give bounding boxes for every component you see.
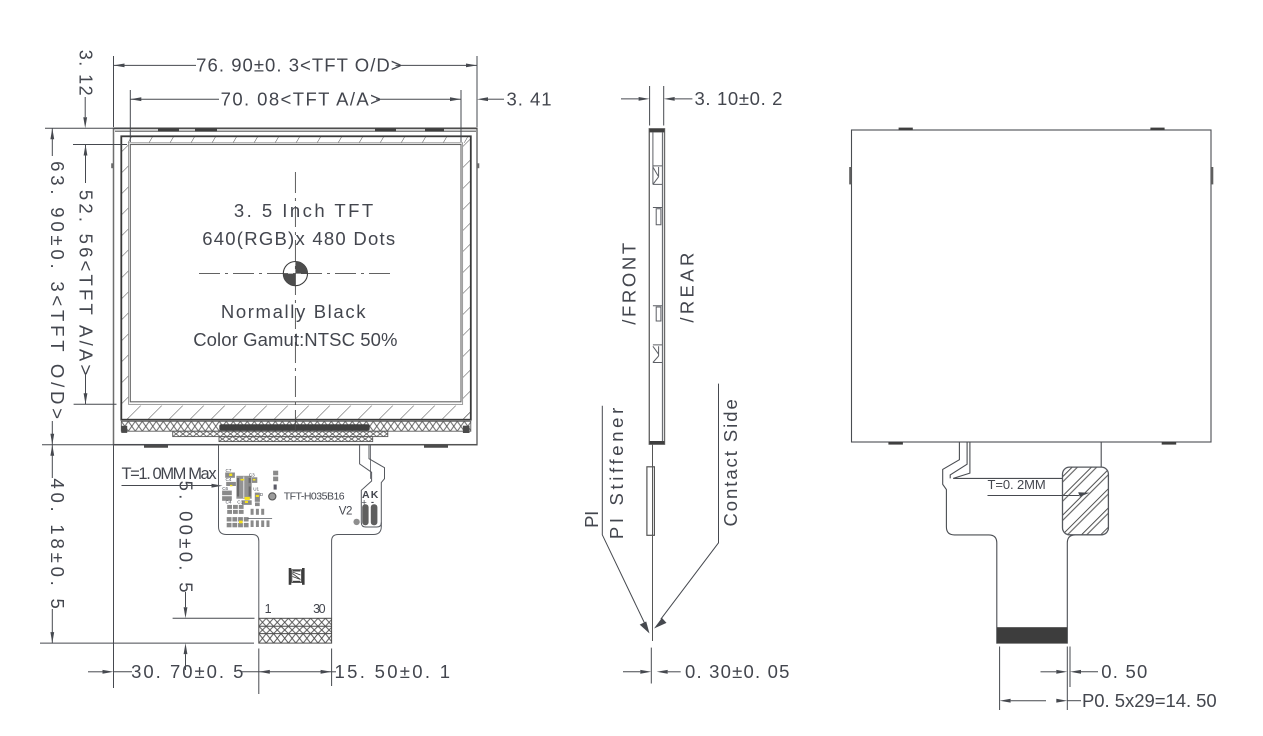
svg-text:TFT-H035B16: TFT-H035B16 — [284, 490, 345, 502]
svg-text:52. 56<TFT A/A>: 52. 56<TFT A/A> — [75, 190, 96, 379]
svg-text:3. 5 Inch TFT: 3. 5 Inch TFT — [234, 200, 376, 221]
svg-text:3. 10±0. 2: 3. 10±0. 2 — [695, 88, 784, 109]
svg-text:63. 90±0. 3<TFT O/D>: 63. 90±0. 3<TFT O/D> — [47, 161, 68, 423]
svg-text:C6: C6 — [222, 486, 228, 491]
svg-text:PI Stiffener: PI Stiffener — [606, 404, 627, 539]
svg-text:640(RGB)x 480 Dots: 640(RGB)x 480 Dots — [202, 228, 396, 249]
svg-text:C7: C7 — [226, 468, 232, 473]
svg-text:P0. 5x29=14. 50: P0. 5x29=14. 50 — [1082, 690, 1217, 711]
svg-text:V2: V2 — [339, 506, 352, 518]
svg-text:5. 00±0. 5: 5. 00±0. 5 — [175, 481, 196, 596]
svg-text:40. 18±0. 5: 40. 18±0. 5 — [47, 478, 68, 612]
svg-text:Normally Black: Normally Black — [221, 301, 367, 322]
svg-text:0. 50: 0. 50 — [1101, 661, 1148, 682]
svg-text:C4: C4 — [226, 477, 232, 482]
svg-text:C1: C1 — [237, 500, 243, 505]
svg-text:/REAR: /REAR — [677, 249, 698, 322]
svg-text:30. 70±0. 5: 30. 70±0. 5 — [131, 661, 245, 682]
svg-text:3. 41: 3. 41 — [507, 89, 553, 110]
svg-text:3. 12: 3. 12 — [76, 50, 96, 97]
svg-text:C4: C4 — [226, 500, 232, 505]
svg-text:Contact Side: Contact Side — [720, 397, 741, 526]
svg-text:15. 50±0. 1: 15. 50±0. 1 — [335, 661, 453, 682]
svg-text:70. 08<TFT A/A>: 70. 08<TFT A/A> — [221, 89, 383, 110]
svg-text:76. 90±0. 3<TFT O/D>: 76. 90±0. 3<TFT O/D> — [196, 55, 402, 76]
svg-text:PI: PI — [581, 511, 602, 528]
svg-text:U1: U1 — [253, 486, 259, 491]
svg-text:30: 30 — [313, 602, 325, 616]
svg-text:Color Gamut:NTSC 50%: Color Gamut:NTSC 50% — [193, 329, 397, 350]
svg-text:C3: C3 — [249, 472, 255, 477]
svg-text:/FRONT: /FRONT — [619, 240, 640, 324]
svg-text:T=1. 0MM Max: T=1. 0MM Max — [122, 465, 218, 483]
svg-text:T=0. 2MM: T=0. 2MM — [988, 477, 1046, 492]
svg-text:0. 30±0. 05: 0. 30±0. 05 — [685, 661, 791, 682]
